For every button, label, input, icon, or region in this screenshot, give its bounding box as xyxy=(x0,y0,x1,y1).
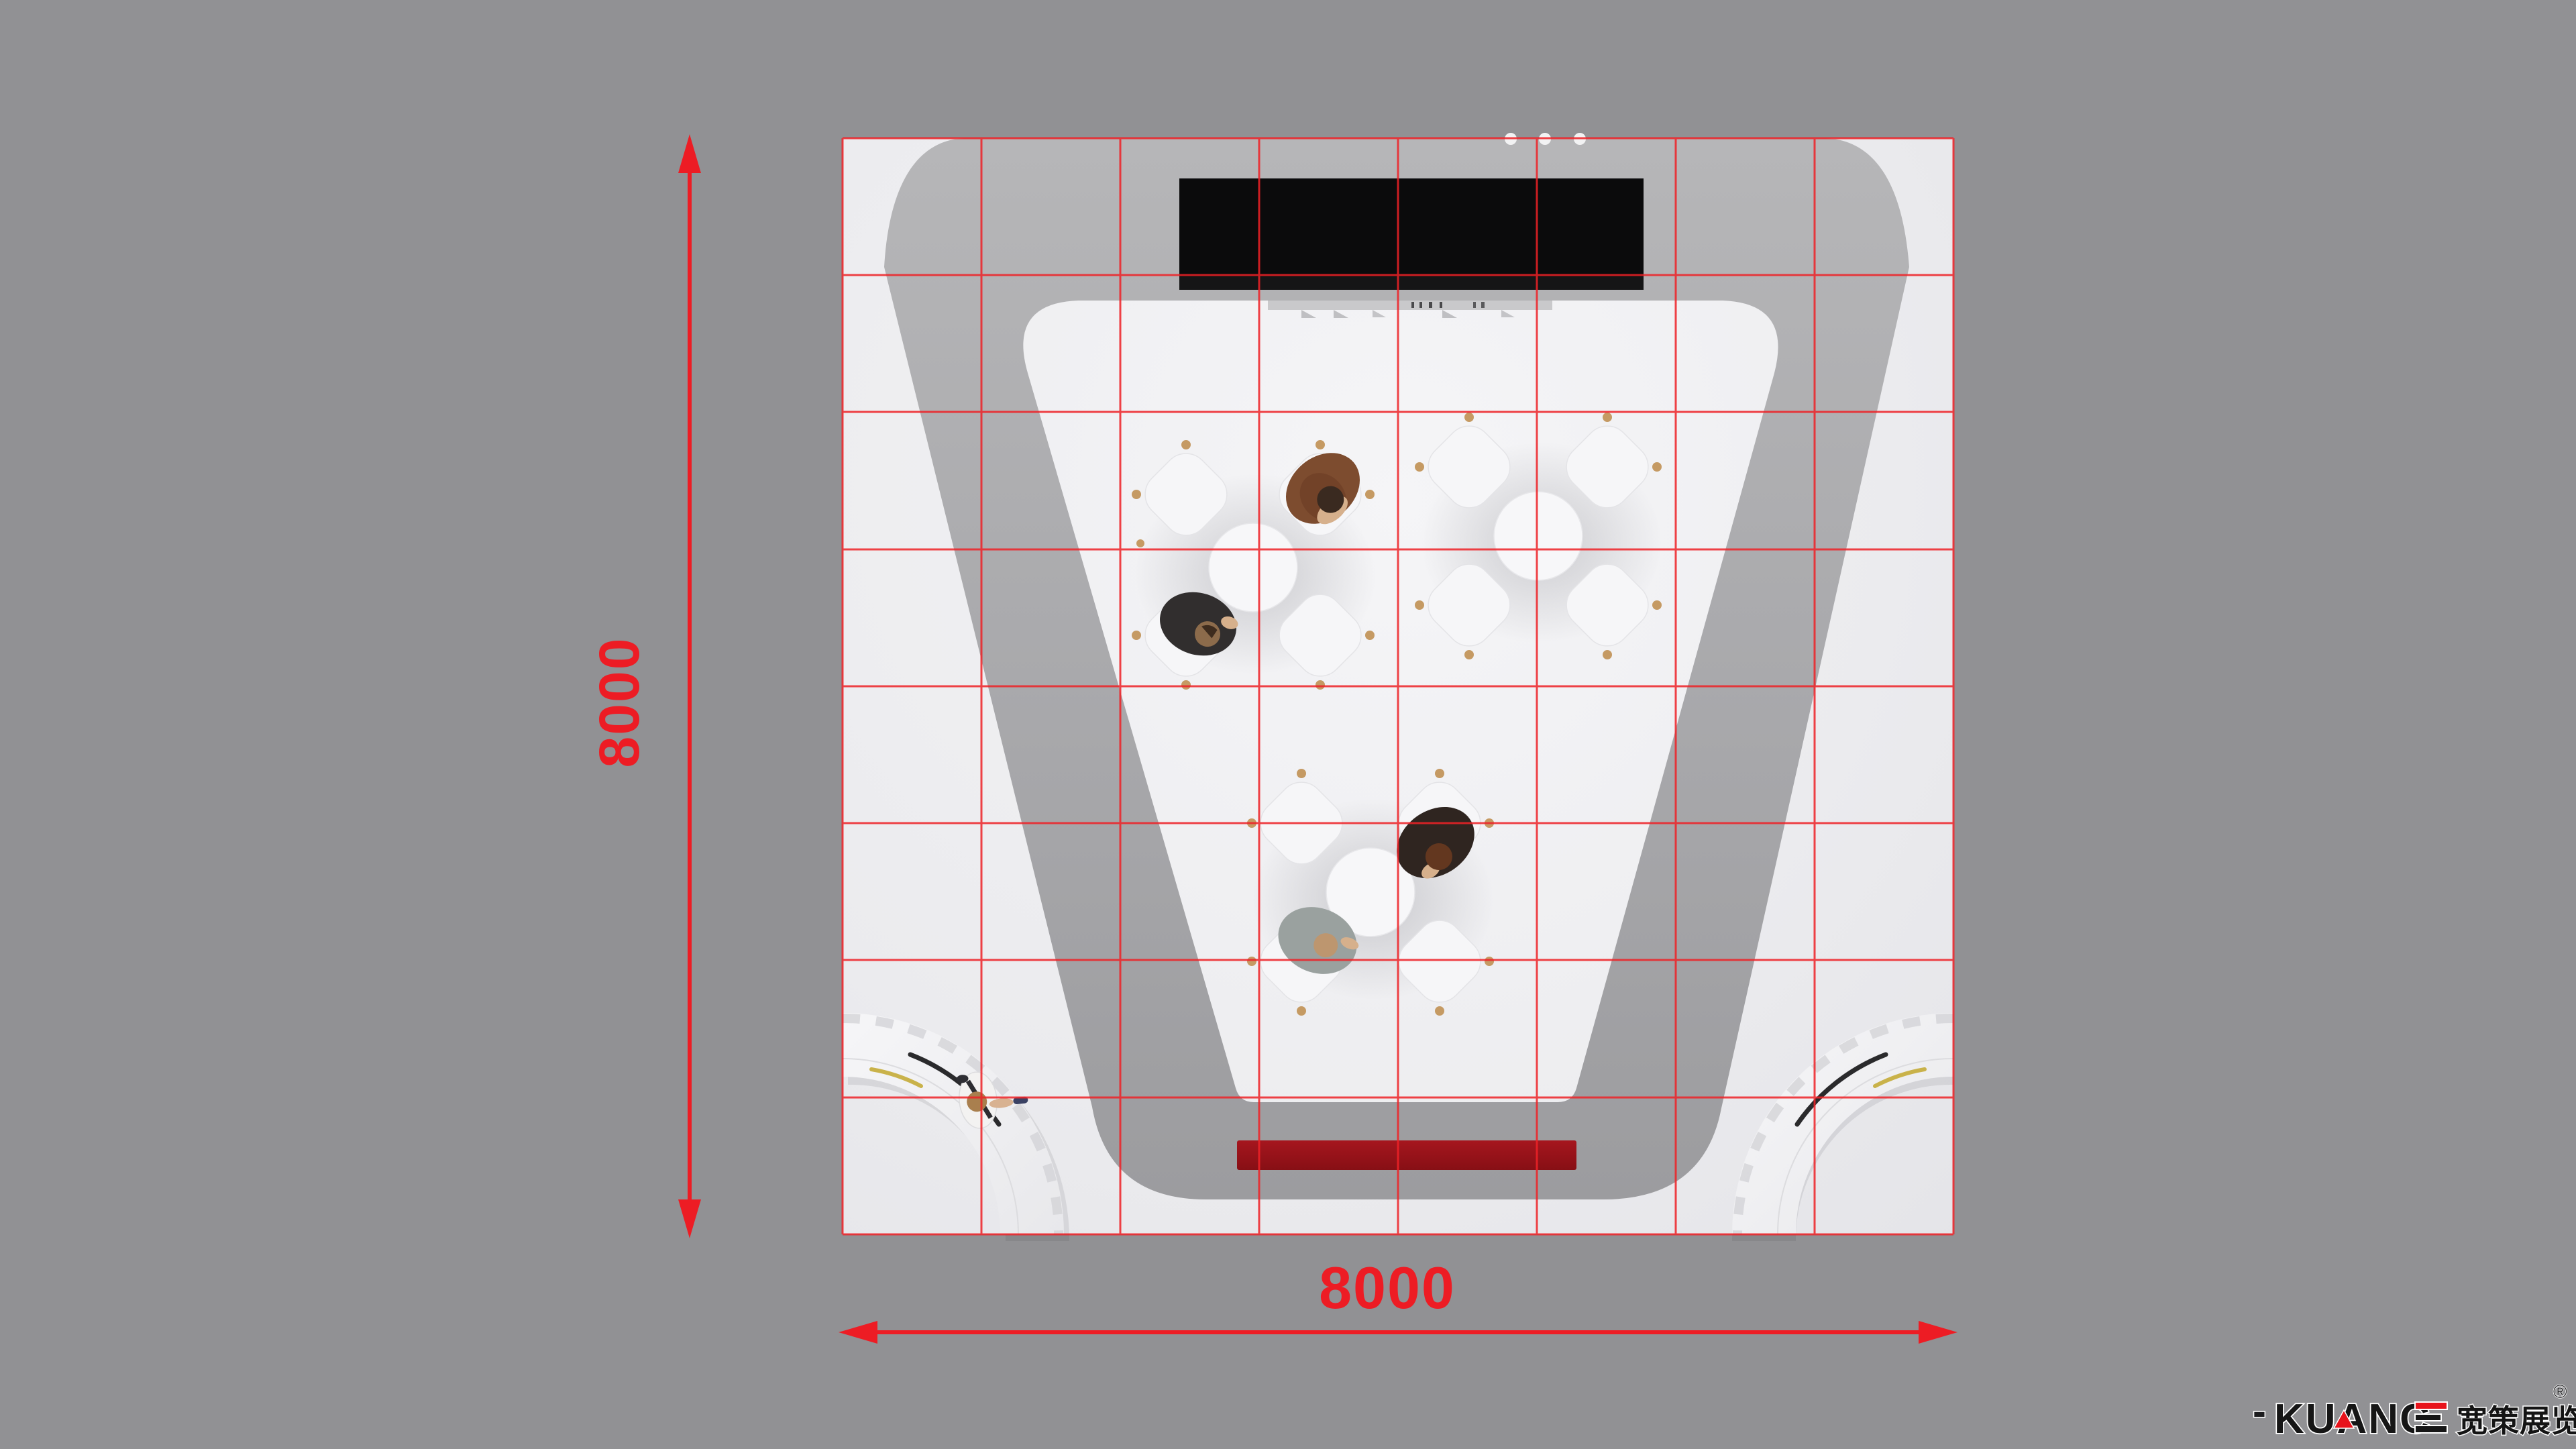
led-screen-base xyxy=(1179,276,1644,290)
meeting-cluster-a xyxy=(1132,438,1377,690)
logo-latin-text: KUANC xyxy=(2274,1396,2431,1442)
logo-dash: - xyxy=(2253,1389,2266,1434)
meeting-cluster-c xyxy=(1247,769,1494,1016)
height-dimension-label: 8000 xyxy=(588,637,651,768)
round-table xyxy=(1209,523,1297,612)
meeting-cluster-b xyxy=(1415,413,1662,659)
width-dimension-label: 8000 xyxy=(1319,1254,1456,1321)
red-reception-strip xyxy=(1237,1140,1576,1170)
logo-cjk-text: 宽策展览 xyxy=(2457,1403,2576,1438)
booth-plan-render: 8000 8000 - KUANC 宽策展览 ® xyxy=(0,0,2576,1449)
round-table xyxy=(1494,492,1582,580)
registered-mark: ® xyxy=(2553,1381,2567,1402)
led-screen xyxy=(1179,178,1644,290)
